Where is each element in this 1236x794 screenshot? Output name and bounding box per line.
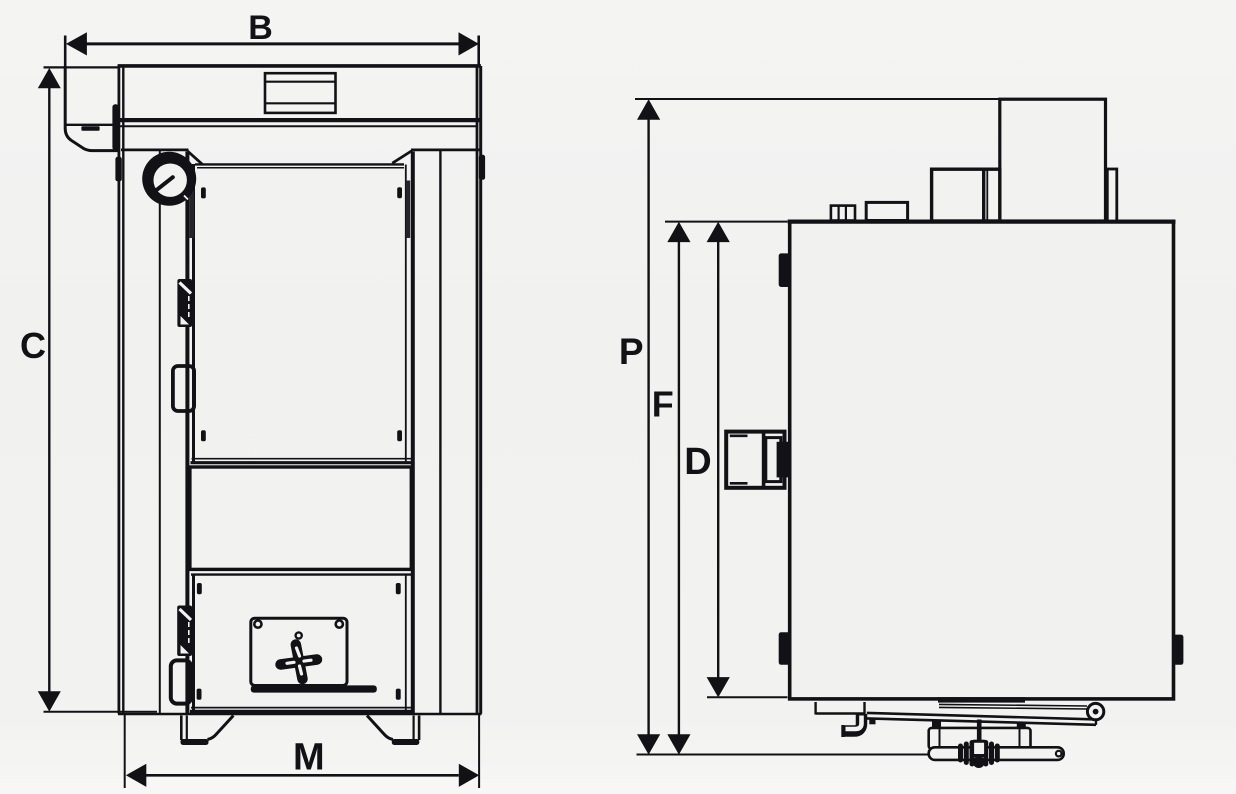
svg-text:D: D: [684, 441, 711, 483]
svg-text:P: P: [619, 331, 644, 372]
svg-text:M: M: [293, 736, 325, 778]
svg-text:F: F: [652, 383, 674, 424]
svg-text:C: C: [20, 325, 46, 366]
svg-text:B: B: [248, 9, 273, 47]
